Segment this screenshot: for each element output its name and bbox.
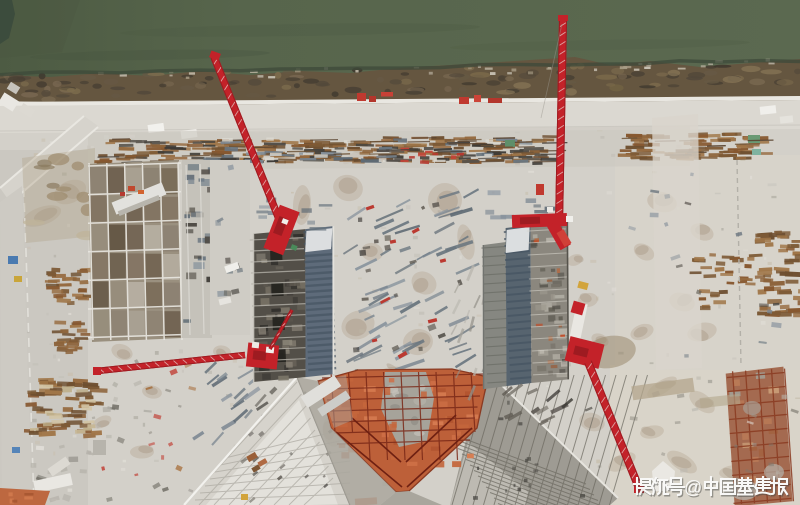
svg-text:@: @ xyxy=(684,478,702,498)
